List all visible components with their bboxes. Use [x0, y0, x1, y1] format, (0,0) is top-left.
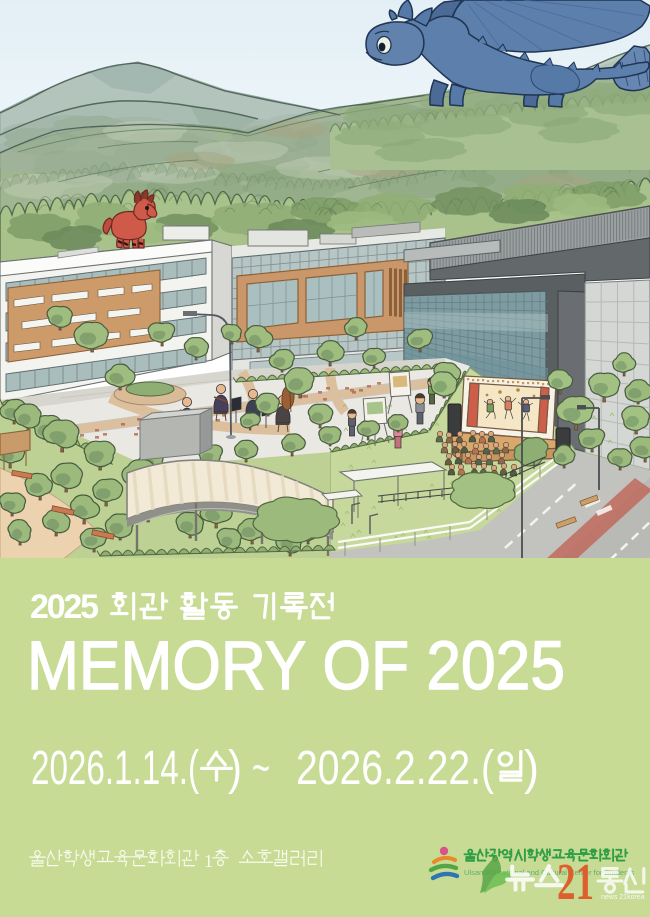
svg-text:MEMORY OF 2025: MEMORY OF 2025 — [27, 627, 565, 704]
svg-text:~: ~ — [252, 742, 270, 795]
svg-text:2025: 2025 — [30, 588, 99, 626]
svg-text:news 21korea: news 21korea — [601, 894, 645, 901]
svg-text:2026.1.14.(: 2026.1.14.( — [31, 742, 199, 795]
svg-text:): ) — [524, 742, 539, 795]
svg-text:1: 1 — [204, 851, 213, 871]
svg-text:2026.2.22.(: 2026.2.22.( — [296, 742, 494, 795]
svg-text:21: 21 — [557, 854, 594, 911]
svg-text:): ) — [228, 742, 242, 795]
